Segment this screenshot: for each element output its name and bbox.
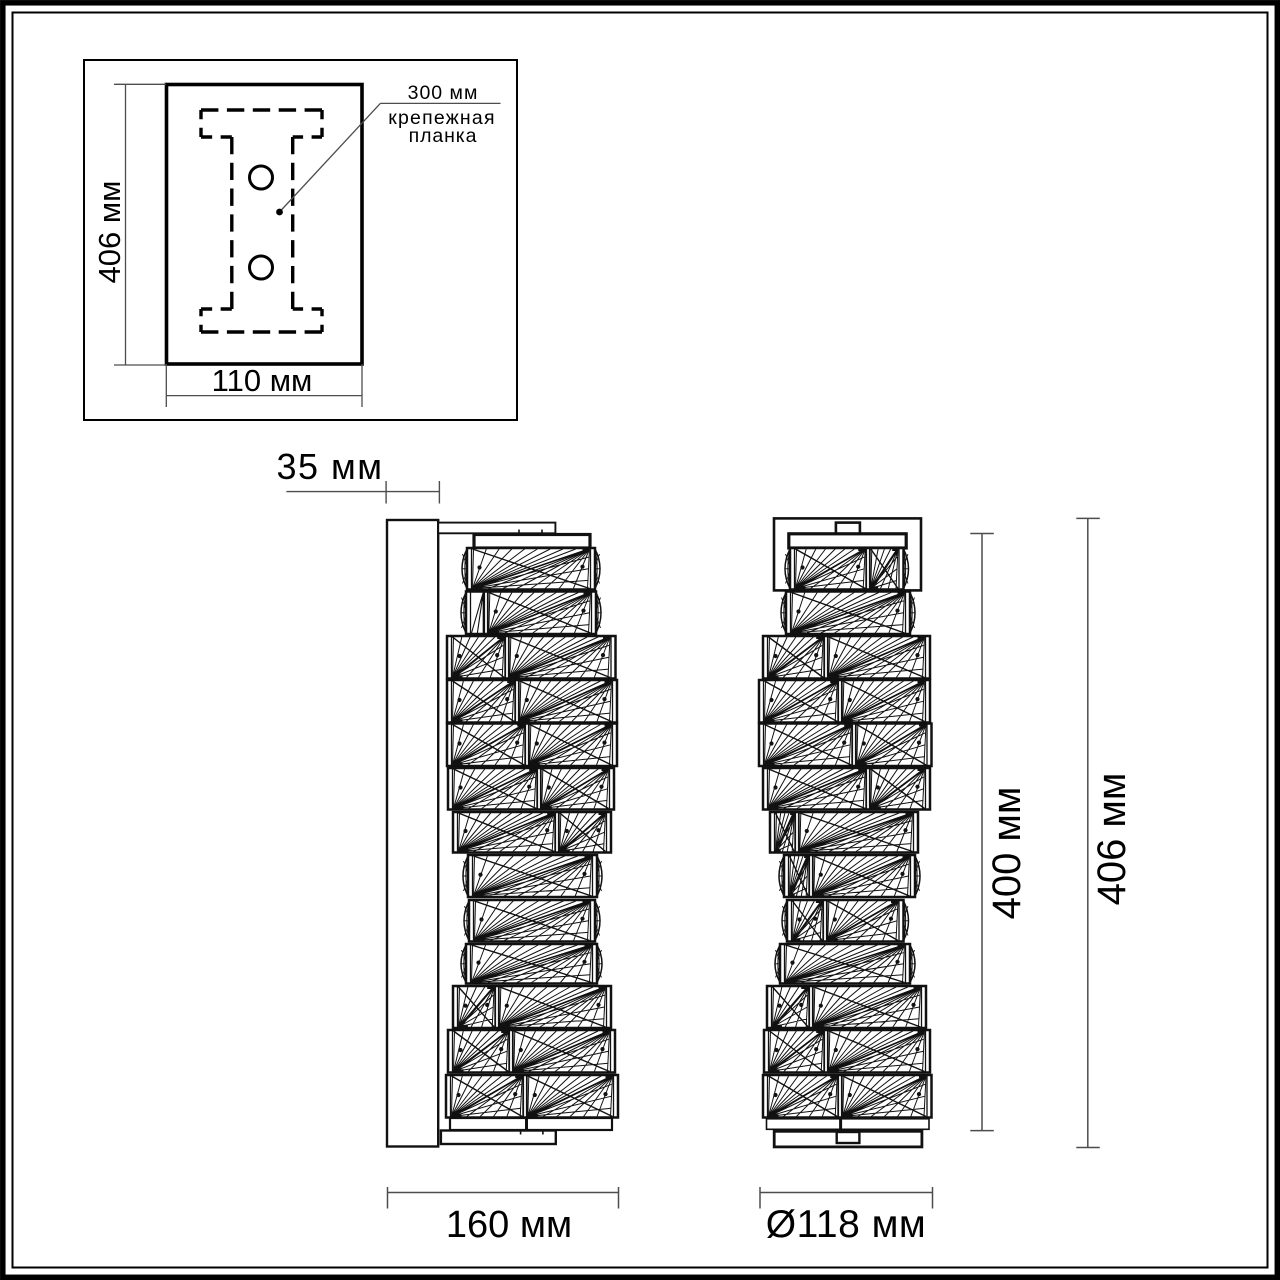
svg-text:планка: планка: [409, 125, 478, 147]
svg-text:406 мм: 406 мм: [1090, 773, 1134, 906]
svg-text:110 мм: 110 мм: [212, 363, 313, 398]
svg-text:400 мм: 400 мм: [985, 787, 1029, 920]
svg-text:35 мм: 35 мм: [276, 446, 383, 487]
svg-text:300 мм: 300 мм: [408, 82, 479, 104]
svg-text:160 мм: 160 мм: [446, 1204, 572, 1246]
svg-text:406 мм: 406 мм: [92, 181, 127, 284]
svg-text:Ø118 мм: Ø118 мм: [766, 1203, 926, 1246]
